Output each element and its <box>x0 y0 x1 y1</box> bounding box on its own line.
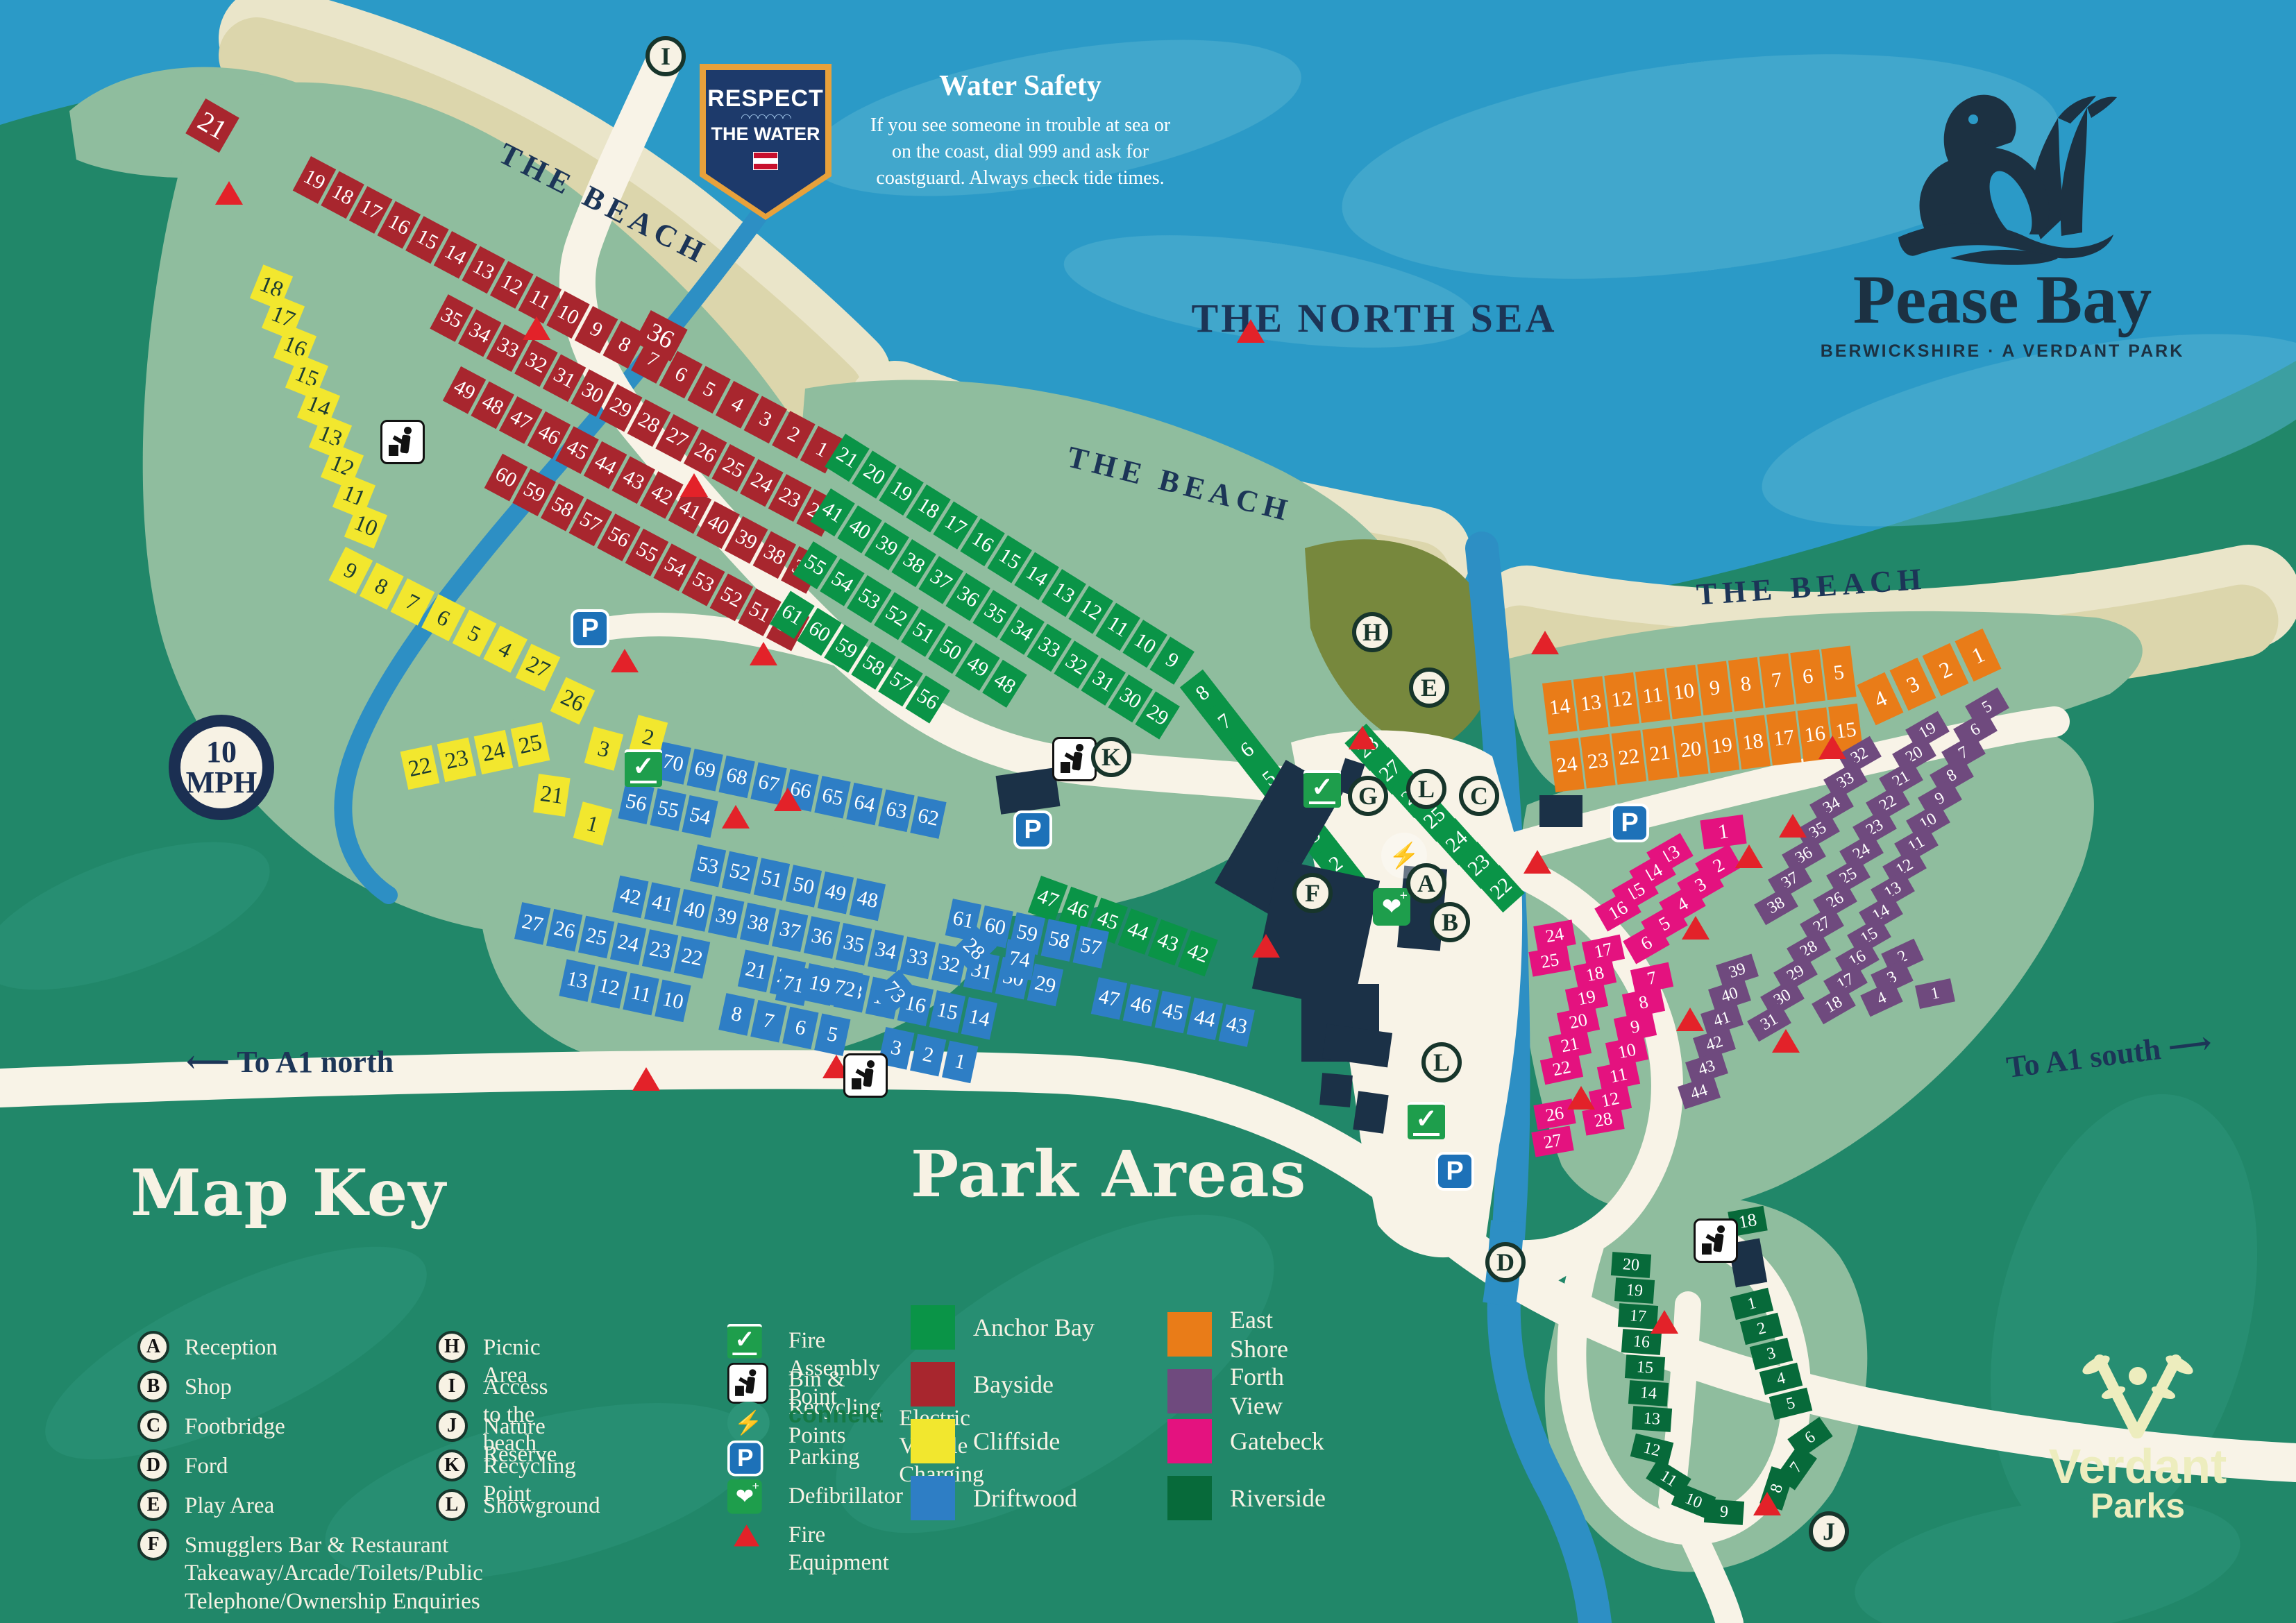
map-key-label-d: Ford <box>185 1450 228 1480</box>
fire-assembly-icon: ✓ <box>625 749 662 787</box>
bin-icon <box>727 1363 770 1400</box>
verdant-parks-logo: Verdant Parks <box>2016 1350 2259 1522</box>
map-key-letter-b: B <box>137 1370 169 1402</box>
building <box>1319 1073 1353 1107</box>
map-key-label-parking-icon: Parking <box>788 1441 860 1471</box>
marker-f: F <box>1292 873 1333 913</box>
park-area-swatch-cliffside <box>911 1419 955 1463</box>
park-area-item-east-shore: East Shore <box>1167 1305 1306 1363</box>
marker-c: C <box>1459 776 1499 816</box>
plot-riverside-20: 20 <box>1611 1252 1651 1278</box>
map-key-label-b: Shop <box>185 1370 232 1401</box>
plot-riverside-9: 9 <box>1704 1499 1744 1525</box>
building <box>1353 1091 1388 1134</box>
fire-equipment-icon <box>523 316 550 340</box>
fire-equipment-icon <box>215 181 243 205</box>
marker-h: H <box>1352 612 1392 652</box>
map-key-title: Map Key <box>130 1155 446 1230</box>
fire-equipment-icon <box>611 649 639 672</box>
map-key-label-fire-equipment-icon: Fire Equipment <box>788 1518 889 1577</box>
map-key-item-c: CFootbridge <box>137 1410 285 1442</box>
map-key-letter-k: K <box>436 1450 468 1481</box>
arrow-left-icon: ⟵ <box>186 1045 230 1079</box>
plot-east-shore-18: 18 <box>1735 715 1771 770</box>
plot-east-shore-13: 13 <box>1573 676 1609 731</box>
defibrillator-icon: ❤+ <box>1373 888 1410 926</box>
rnli-flag-icon <box>753 152 778 170</box>
park-area-name-gatebeck: Gatebeck <box>1230 1427 1324 1456</box>
map-key-item-a: AReception <box>137 1331 278 1363</box>
park-area-swatch-east-shore <box>1167 1312 1212 1357</box>
plot-east-shore-10: 10 <box>1666 665 1702 720</box>
plot-riverside-15: 15 <box>1625 1354 1665 1381</box>
marker-a: A <box>1406 863 1446 903</box>
fire-equipment-icon <box>1682 916 1710 940</box>
plot-east-shore-7: 7 <box>1759 653 1795 708</box>
building <box>1539 795 1582 827</box>
marker-l: L <box>1406 769 1446 809</box>
fire-assembly-icon: ✓ <box>1303 770 1341 808</box>
parking-icon: P <box>571 609 609 648</box>
bin-icon <box>1052 737 1097 781</box>
plot-east-shore-24: 24 <box>1549 738 1585 792</box>
map-key-legend: Map Key AReceptionBShopCFootbridgeDFordE… <box>130 1155 446 1268</box>
map-key-letter-f: F <box>137 1529 169 1561</box>
park-area-swatch-anchor-bay <box>911 1305 955 1350</box>
arrow-right-icon: ⟶ <box>2166 1026 2214 1064</box>
fire-equipment-icon <box>1779 814 1807 838</box>
pease-bay-logo: Pease Bay BERWICKSHIRE · A VERDANT PARK <box>1805 76 2200 362</box>
map-key-item-fire-equipment-icon: Fire Equipment <box>727 1518 889 1577</box>
fire-assembly-icon: ✓ <box>727 1324 762 1359</box>
respect-line2: THE WATER <box>711 124 820 145</box>
plot-riverside-19: 19 <box>1614 1277 1655 1304</box>
seal-icon <box>1884 76 2120 271</box>
map-key-item-l: LShowground <box>436 1489 600 1521</box>
park-area-swatch-bayside <box>911 1362 955 1407</box>
map-key-letter-j: J <box>436 1410 468 1442</box>
plot-east-shore-12: 12 <box>1604 672 1639 727</box>
park-area-name-cliffside: Cliffside <box>973 1427 1060 1456</box>
ev-charging-icon: ⚡ <box>727 1402 770 1444</box>
fire-equipment-icon <box>1772 1029 1800 1053</box>
plot-east-shore-22: 22 <box>1612 730 1647 785</box>
fire-assembly-icon: ✓ <box>727 1324 770 1361</box>
parking-icon: P <box>1435 1152 1474 1191</box>
map-key-item-parking-icon: PParking <box>727 1441 860 1481</box>
park-area-swatch-riverside <box>1167 1476 1212 1520</box>
map-key-item-e: EPlay Area <box>137 1489 274 1521</box>
park-area-item-forth-view: Forth View <box>1167 1362 1306 1420</box>
fire-equipment-icon <box>1531 631 1559 654</box>
map-key-item-f: FSmugglers Bar & Restaurant Takeaway/Arc… <box>137 1529 483 1615</box>
connekt-brand: connekt <box>788 1402 884 1429</box>
fire-equipment-icon <box>727 1518 770 1555</box>
building <box>996 767 1061 814</box>
fire-equipment-icon <box>1676 1008 1704 1031</box>
map-key-label-defibrillator-icon: Defibrillator <box>788 1479 903 1510</box>
marker-j: J <box>1809 1511 1849 1552</box>
fire-equipment-icon <box>1523 850 1551 874</box>
park-area-name-forth-view: Forth View <box>1230 1362 1306 1420</box>
fire-equipment-icon <box>1735 844 1763 868</box>
map-key-item-defibrillator-icon: ❤+Defibrillator <box>727 1479 903 1520</box>
plot-east-shore-17: 17 <box>1766 711 1802 766</box>
fire-equipment-icon <box>722 805 750 829</box>
fire-equipment-icon <box>680 473 708 497</box>
plot-east-shore-6: 6 <box>1790 649 1825 704</box>
plot-east-shore-8: 8 <box>1728 657 1764 712</box>
defibrillator-icon: ❤+ <box>727 1479 762 1514</box>
marker-k: K <box>1091 737 1131 777</box>
marker-d: D <box>1485 1242 1526 1282</box>
fire-equipment-icon <box>750 642 777 665</box>
park-area-swatch-forth-view <box>1167 1369 1212 1413</box>
plot-east-shore-20: 20 <box>1673 722 1709 777</box>
verdant-line2: Parks <box>2016 1490 2259 1523</box>
parking-icon: P <box>1013 810 1052 849</box>
map-key-label-e: Play Area <box>185 1489 274 1520</box>
parking-icon: P <box>727 1441 763 1477</box>
respect-line1: RESPECT <box>707 85 824 112</box>
plot-east-shore-5: 5 <box>1821 646 1857 701</box>
park-area-name-bayside: Bayside <box>973 1370 1054 1399</box>
pease-bay-park-map: THE NORTH SEA THE BEACH THE BEACH THE BE… <box>0 0 2296 1623</box>
parking-icon: P <box>727 1441 770 1477</box>
marker-b: B <box>1430 902 1470 942</box>
plot-east-shore-9: 9 <box>1697 661 1732 715</box>
water-safety-body: If you see someone in trouble at sea or … <box>864 112 1176 191</box>
fire-equipment-icon <box>1753 1492 1781 1515</box>
marker-e: E <box>1409 668 1449 708</box>
park-area-item-anchor-bay: Anchor Bay <box>911 1305 1095 1350</box>
speed-unit: MPH <box>186 767 258 798</box>
brand-name: Pease Bay <box>1805 265 2200 334</box>
bin-icon <box>1694 1218 1738 1263</box>
plot-east-shore-14: 14 <box>1542 680 1578 735</box>
fire-equipment-icon <box>1651 1310 1678 1334</box>
park-area-item-driftwood: Driftwood <box>911 1476 1077 1520</box>
park-area-name-riverside: Riverside <box>1230 1484 1326 1513</box>
fire-equipment-icon <box>1252 934 1280 958</box>
fire-assembly-icon: ✓ <box>1408 1102 1445 1139</box>
plot-east-shore-19: 19 <box>1705 719 1740 774</box>
park-area-item-cliffside: Cliffside <box>911 1419 1060 1463</box>
bin-icon <box>727 1363 768 1404</box>
bin-icon <box>380 420 425 464</box>
park-areas-legend: Park Areas Anchor BayBaysideCliffsideDri… <box>911 1137 1306 1250</box>
plot-riverside-13: 13 <box>1632 1406 1672 1432</box>
marker-g: G <box>1348 776 1388 816</box>
map-key-item-d: DFord <box>137 1450 228 1481</box>
marker-i: I <box>645 36 686 76</box>
plot-riverside-14: 14 <box>1628 1380 1669 1407</box>
verdant-line1: Verdant <box>2016 1443 2259 1490</box>
map-key-label-l: Showground <box>483 1489 600 1520</box>
map-key-label-c: Footbridge <box>185 1410 285 1441</box>
fire-equipment-icon <box>1818 736 1846 759</box>
fire-equipment-icon <box>1237 319 1265 343</box>
parking-icon: P <box>1610 804 1649 842</box>
plot-cliffside-21: 21 <box>533 774 570 817</box>
map-key-letter-a: A <box>137 1331 169 1363</box>
to-a1-north-label: ⟵ To A1 north <box>186 1044 394 1080</box>
verdant-v-icon <box>2075 1350 2200 1440</box>
plot-east-shore-11: 11 <box>1635 668 1671 723</box>
marker-l: L <box>1421 1042 1462 1082</box>
speed-value: 10 <box>206 737 237 767</box>
park-area-item-riverside: Riverside <box>1167 1476 1326 1520</box>
map-key-label-f: Smugglers Bar & Restaurant Takeaway/Arca… <box>185 1529 483 1615</box>
fire-equipment-icon <box>632 1067 660 1091</box>
map-key-letter-i: I <box>436 1370 468 1402</box>
plot-east-shore-21: 21 <box>1642 726 1678 781</box>
map-key-letter-l: L <box>436 1489 468 1521</box>
water-safety-notice: Water Safety If you see someone in troub… <box>864 69 1176 191</box>
plot-driftwood-74: 74 <box>1002 939 1036 980</box>
park-area-name-east-shore: East Shore <box>1230 1305 1306 1363</box>
map-key-letter-h: H <box>436 1331 468 1363</box>
park-area-swatch-driftwood <box>911 1476 955 1520</box>
badge-waves: ◠◠◠◠◠◠ <box>741 111 791 125</box>
map-key-letter-e: E <box>137 1489 169 1521</box>
map-key-label-a: Reception <box>185 1331 278 1361</box>
map-key-letter-d: D <box>137 1450 169 1481</box>
fire-equipment-icon <box>734 1524 759 1546</box>
bin-icon <box>843 1053 888 1098</box>
defibrillator-icon: ❤+ <box>727 1479 770 1516</box>
park-area-item-gatebeck: Gatebeck <box>1167 1419 1324 1463</box>
fire-equipment-icon <box>1349 726 1376 749</box>
brand-subtitle: BERWICKSHIRE · A VERDANT PARK <box>1805 341 2200 362</box>
park-areas-title: Park Areas <box>911 1137 1306 1212</box>
park-area-item-bayside: Bayside <box>911 1362 1054 1407</box>
map-key-item-b: BShop <box>137 1370 232 1402</box>
ev-charging-icon: ⚡ <box>727 1402 770 1438</box>
water-safety-title: Water Safety <box>864 69 1176 103</box>
plot-east-shore-23: 23 <box>1580 734 1616 789</box>
park-area-name-driftwood: Driftwood <box>973 1484 1077 1513</box>
map-key-letter-c: C <box>137 1410 169 1442</box>
speed-limit-sign: 10 MPH <box>169 715 274 820</box>
fire-equipment-icon <box>774 788 802 811</box>
park-area-name-anchor-bay: Anchor Bay <box>973 1313 1095 1342</box>
fire-equipment-icon <box>1567 1086 1595 1110</box>
park-area-swatch-gatebeck <box>1167 1419 1212 1463</box>
